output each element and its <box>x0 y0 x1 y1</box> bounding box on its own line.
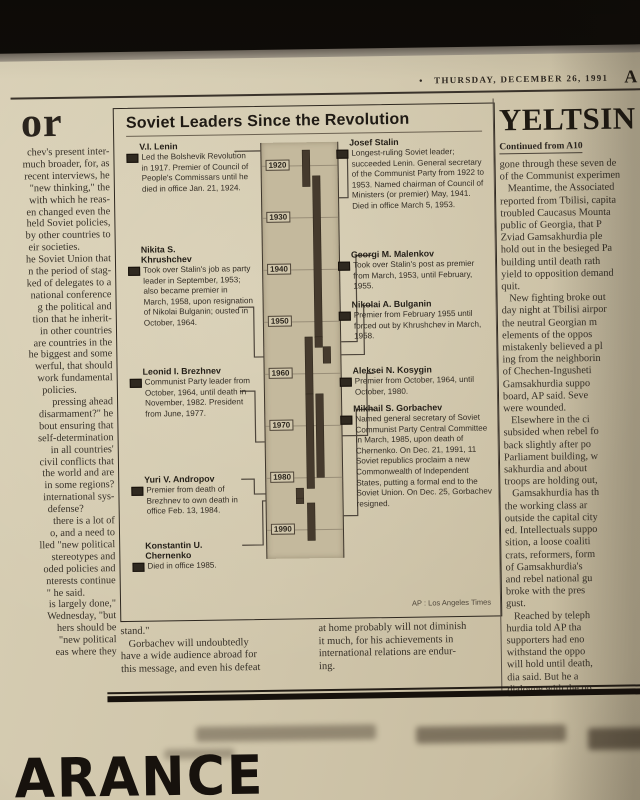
newspaper-photo: • THURSDAY, DECEMBER 26, 1991 A or chev'… <box>0 0 640 800</box>
portrait-bullet-icon <box>130 379 142 388</box>
leader-name: Konstantin U. Chernenko <box>145 539 258 561</box>
left-headline-fragment: or <box>21 99 63 148</box>
leader-bio-text: Premier from October, 1964, until Octobe… <box>355 375 492 398</box>
continued-from-line: Continued from A10 <box>499 141 582 154</box>
page-letter: A <box>624 66 637 87</box>
portrait-bullet-icon <box>126 154 138 163</box>
leader-bio: Mikhail S. GorbachevNamed general secret… <box>340 402 494 511</box>
tenure-bar <box>305 337 313 394</box>
leader-bio-body: Premier from October, 1964, until Octobe… <box>340 375 492 398</box>
portrait-bullet-icon <box>338 262 350 271</box>
portrait-bullet-icon <box>128 267 140 276</box>
leader-name: Aleksei N. Kosygin <box>353 364 492 376</box>
leader-bio: Josef StalinLongest-ruling Soviet leader… <box>336 136 489 213</box>
tenure-bar <box>308 504 316 540</box>
leader-bio-body: Communist Party leader from October, 196… <box>130 376 257 420</box>
leader-bio: Yuri V. AndropovPremier from death of Br… <box>131 473 258 518</box>
portrait-bullet-icon <box>340 416 352 425</box>
leader-bio-body: Led the Bolshevik Revolution in 1917. Pr… <box>126 151 253 195</box>
soviet-leaders-graphic: Soviet Leaders Since the Revolution <box>113 102 503 622</box>
yeltsin-article: YELTSIN Continued from A10 gone through … <box>499 102 640 697</box>
ad-banner-fragment: ARANCE <box>14 745 265 800</box>
yeltsin-headline: YELTSIN <box>499 102 640 137</box>
yeltsin-body: gone through these seven deof the Commun… <box>500 157 640 697</box>
leader-bio-text: Communist Party leader from October, 196… <box>145 376 257 420</box>
article-text-line: this message, and even his defeat <box>121 661 306 676</box>
decade-label: 1920 <box>265 160 289 171</box>
leader-name: Mikhail S. Gorbachev <box>353 402 492 414</box>
graphic-credit: AP : Los Angeles Times <box>412 598 491 608</box>
leader-bio-text: Took over Stalin's post as premier from … <box>353 259 490 293</box>
masthead-rule <box>11 88 640 100</box>
portrait-bullet-icon <box>132 563 144 572</box>
tenure-bar <box>323 347 330 363</box>
tenure-bar <box>302 150 310 186</box>
leader-name: V.I. Lenin <box>139 140 252 152</box>
decade-label: 1970 <box>269 420 293 431</box>
portrait-bullet-icon <box>339 312 351 321</box>
below-graphic-left-column: stand." Gorbachev will undoubtedlyhave a… <box>120 623 306 676</box>
tenure-bar <box>296 488 303 498</box>
leader-bio-body: Named general secretary of Soviet Commun… <box>340 413 493 511</box>
leader-bio: Nikita S. KhrushchevTook over Stalin's j… <box>128 243 255 329</box>
leader-bio: Konstantin U. ChernenkoDied in office 19… <box>132 539 258 572</box>
leader-name: Nikolai A. Bulganin <box>352 298 491 310</box>
leader-bio-text: Took over Stalin's job as party leader i… <box>143 264 255 329</box>
portrait-bullet-icon <box>336 150 348 159</box>
leader-name: Georgi M. Malenkov <box>351 248 490 260</box>
article-text-line: eas where they <box>0 646 117 661</box>
decade-label: 1950 <box>268 316 292 327</box>
leader-bio-body: Died in office 1985. <box>132 560 258 572</box>
tenure-bar <box>313 176 322 337</box>
portrait-bullet-icon <box>131 487 143 496</box>
ink-bleed-smudge <box>416 724 566 743</box>
leader-name: Nikita S. Khrushchev <box>141 243 254 265</box>
leader-bio-body: Premier from death of Brezhnev to own de… <box>131 484 257 518</box>
article-text-line: of the Communist experimen <box>500 169 640 184</box>
tenure-bar <box>316 394 324 477</box>
tenure-bar <box>306 394 314 488</box>
leader-bio-text: Premier from death of Brezhnev to own de… <box>146 484 257 517</box>
leader-bio-body: Took over Stalin's post as premier from … <box>338 259 490 293</box>
decade-label: 1940 <box>267 264 291 275</box>
left-article-column: chev's present inter-much broader, for, … <box>0 146 117 661</box>
leader-bio-text: Led the Bolshevik Revolution in 1917. Pr… <box>141 151 253 195</box>
leader-bio: V.I. LeninLed the Bolshevik Revolution i… <box>126 140 253 195</box>
leader-bio-text: Died in office 1985. <box>147 561 216 573</box>
decade-label: 1960 <box>269 368 293 379</box>
leader-name: Yuri V. Andropov <box>144 473 257 485</box>
leader-bio-text: Longest-ruling Soviet leader; succeeded … <box>351 147 489 213</box>
ink-bleed-smudge <box>588 727 640 750</box>
tenure-bar <box>315 337 322 347</box>
below-graphic-right-column: at home probably will not diminishit muc… <box>318 620 504 673</box>
leader-bio-text: Named general secretary of Soviet Commun… <box>355 413 493 510</box>
leader-bio: Georgi M. MalenkovTook over Stalin's pos… <box>338 248 491 293</box>
decade-label: 1980 <box>270 472 294 483</box>
portrait-bullet-icon <box>340 378 352 387</box>
ink-bleed-smudge <box>196 724 376 742</box>
decade-label: 1930 <box>266 212 290 223</box>
decade-label: 1990 <box>271 524 295 535</box>
leader-name: Leonid I. Brezhnev <box>143 365 256 377</box>
leader-bio-body: Took over Stalin's job as party leader i… <box>128 264 255 329</box>
date-line: • THURSDAY, DECEMBER 26, 1991 <box>308 73 608 87</box>
decade-timeline: 19201930194019501960197019801990 <box>260 142 344 559</box>
leader-bio-text: Premier from February 1955 until forced … <box>354 309 491 343</box>
paper: • THURSDAY, DECEMBER 26, 1991 A or chev'… <box>0 52 640 800</box>
leader-bio: Aleksei N. KosyginPremier from October, … <box>340 364 492 398</box>
leader-bio-body: Premier from February 1955 until forced … <box>339 309 491 343</box>
leader-bio: Nikolai A. BulganinPremier from February… <box>339 298 492 343</box>
leader-name: Josef Stalin <box>349 136 488 148</box>
leader-bio-body: Longest-ruling Soviet leader; succeeded … <box>336 147 489 213</box>
newspaper-page: • THURSDAY, DECEMBER 26, 1991 A or chev'… <box>0 52 640 800</box>
tenure-bar <box>297 499 304 504</box>
leader-bio: Leonid I. BrezhnevCommunist Party leader… <box>130 365 257 420</box>
